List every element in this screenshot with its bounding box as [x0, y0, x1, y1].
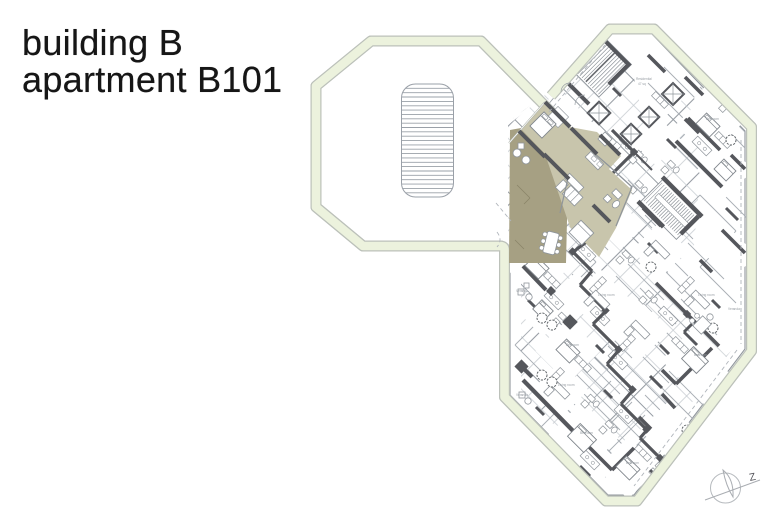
- svg-text:Living room: Living room: [598, 293, 615, 297]
- svg-text:Bedroom: Bedroom: [626, 461, 639, 465]
- svg-text:Veranda: Veranda: [516, 289, 528, 293]
- svg-text:Bedroom: Bedroom: [580, 431, 593, 435]
- svg-text:Veranda: Veranda: [516, 393, 528, 397]
- svg-text:Residential: Residential: [636, 77, 652, 81]
- svg-text:Bedroom: Bedroom: [566, 343, 579, 347]
- svg-text:Z: Z: [748, 471, 757, 484]
- svg-text:47 sq: 47 sq: [638, 82, 646, 86]
- svg-text:Living room: Living room: [558, 383, 575, 387]
- svg-text:Living room: Living room: [698, 293, 715, 297]
- svg-text:Veranda: Veranda: [728, 307, 740, 311]
- svg-text:Bedroom: Bedroom: [706, 117, 719, 121]
- svg-text:Bedroom: Bedroom: [694, 353, 707, 357]
